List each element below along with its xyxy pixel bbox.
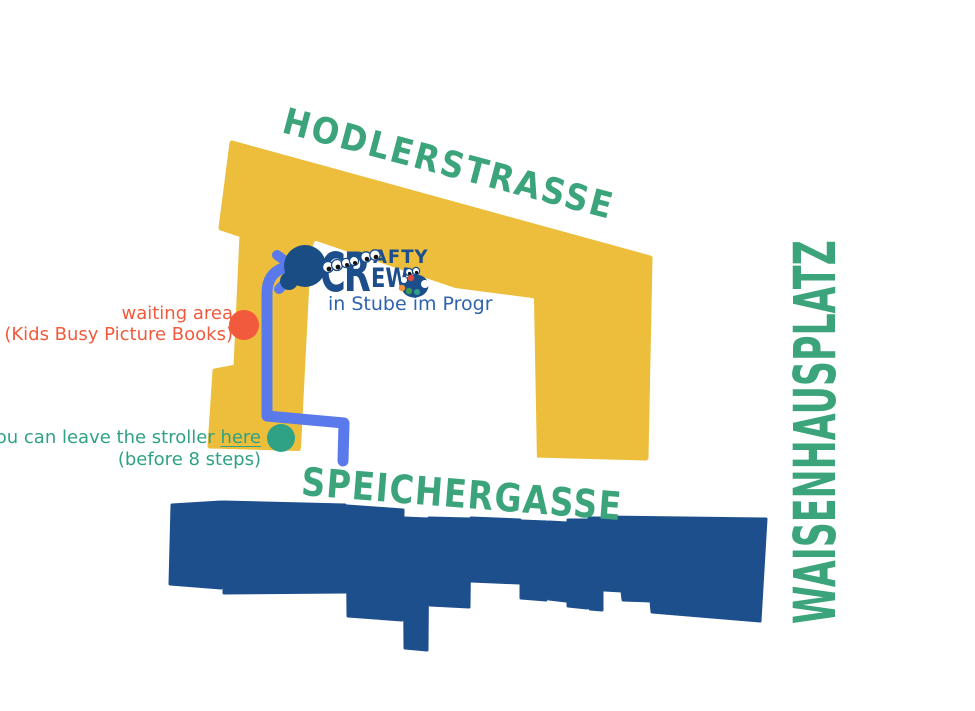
building-block [471,518,520,583]
destination-caption: in Stube im Progr [328,293,493,315]
building-block [568,520,588,608]
building-block [223,502,346,593]
building-block [347,506,403,620]
waiting-area-line2: (Kids Busy Picture Books) [4,324,233,345]
stroller-label: you can leave the stroller here (before … [0,427,261,471]
building-block [589,518,602,610]
stroller-line1: you can leave the stroller here [0,427,261,449]
stroller-marker [267,424,295,452]
stroller-here-link[interactable]: here [220,427,261,448]
crafty-crew-logo-ew: EW [371,265,409,292]
directions-map: HODLERSTRASSE SPEICHERGASSE WAISENHAUSPL… [0,0,975,711]
stroller-line1-text: you can leave the stroller [0,427,220,448]
stroller-line2: (before 8 steps) [0,449,261,471]
waiting-area-label: waiting area (Kids Busy Picture Books) [4,303,233,345]
waiting-area-line1: waiting area [4,303,233,324]
crafty-crew-logo-cr: CR [320,246,369,300]
speichergasse-buildings [170,502,766,650]
building-block [404,518,428,650]
building-block [521,521,547,600]
building-block [549,522,567,601]
building-block [170,502,221,588]
building-block [429,518,470,607]
waiting-area-marker [229,310,259,340]
street-label-waisenhausplatz: WAISENHAUSPLATZ [786,240,844,624]
building-block [604,517,766,621]
